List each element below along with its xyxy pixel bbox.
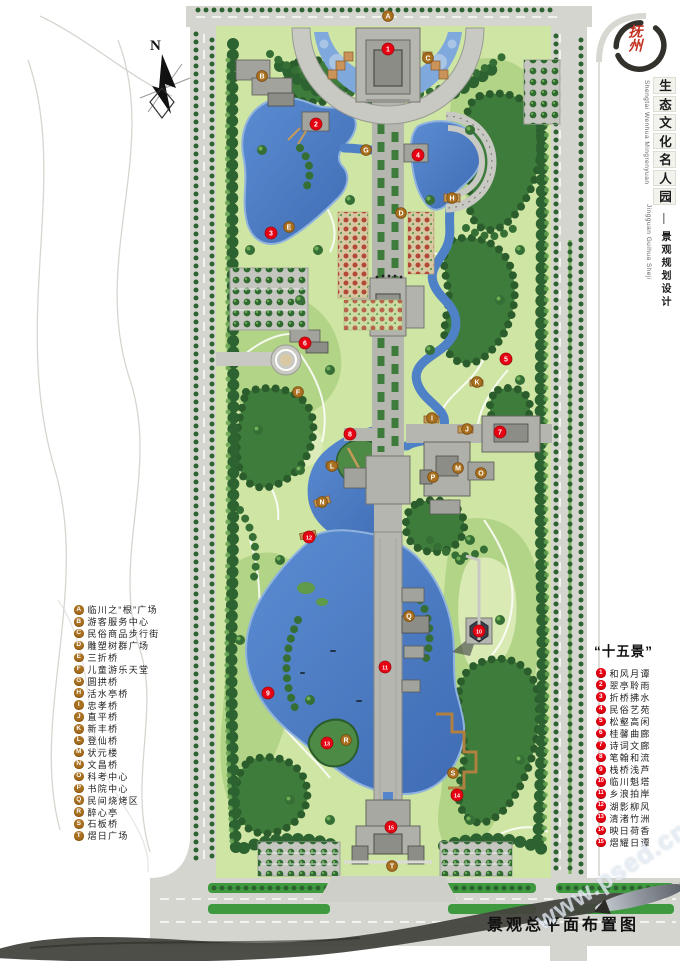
legend-item-E: E三折桥 <box>74 652 160 664</box>
legend-label-4: 民俗艺苑 <box>610 703 651 716</box>
legend-badge-D: D <box>74 641 84 651</box>
legend-item-L: L登仙桥 <box>74 735 160 747</box>
main-title-pinyin: Shengtai Wenhua Mingrenyuan <box>643 80 650 210</box>
map-marker-text-n13: 13 <box>324 741 330 747</box>
main-title-char: 名 <box>653 151 676 168</box>
map-marker-text-B: B <box>259 73 264 80</box>
legend-scenes: “十五景” 1和风月谭2翠亭聆雨3折桥拂水4民俗艺苑5松壑高闲6桂馨曲廊7诗词文… <box>596 640 653 848</box>
legend-item-4: 4民俗艺苑 <box>596 703 653 715</box>
map-marker-text-K: K <box>474 379 479 386</box>
map-marker-text-n12: 12 <box>306 535 312 541</box>
map-marker-text-n9: 9 <box>266 690 270 697</box>
legend-badge-13: 13 <box>596 813 606 823</box>
legend-item-H: H活水亭桥 <box>74 687 160 699</box>
legend-badge-B: B <box>74 617 84 627</box>
map-marker-text-S: S <box>451 770 456 777</box>
north-arrow-glyph <box>138 30 198 130</box>
legend-item-7: 7诗词文廊 <box>596 740 653 752</box>
legend-label-8: 笔翰和流 <box>610 751 651 764</box>
legend-label-2: 翠亭聆雨 <box>610 679 651 692</box>
parking-southeast <box>440 842 512 876</box>
legend-item-10: 10临川魁塔 <box>596 776 653 788</box>
legend-badge-5: 5 <box>596 717 606 727</box>
map-marker-text-M: M <box>455 465 461 472</box>
legend-item-B: B游客服务中心 <box>74 616 160 628</box>
legend-label-11: 乡浪拍岸 <box>610 787 651 800</box>
legend-badge-15: 15 <box>596 838 606 848</box>
map-marker-text-R: R <box>343 737 348 744</box>
map-marker-text-D: D <box>398 210 403 217</box>
legend-item-9: 9栈桥浅芦 <box>596 764 653 776</box>
legend-item-I: I忠孝桥 <box>74 699 160 711</box>
map-marker-text-O: O <box>478 470 484 477</box>
legend-label-T: 熠日广场 <box>88 829 129 842</box>
map-marker-text-N: N <box>319 499 324 506</box>
legend-item-R: R醉心亭 <box>74 806 160 818</box>
legend-item-12: 12湖影柳风 <box>596 800 653 812</box>
legend-item-Q: Q民间烧烤区 <box>74 794 160 806</box>
legend-item-J: J直平桥 <box>74 711 160 723</box>
map-marker-text-n14: 14 <box>454 793 460 799</box>
legend-badge-F: F <box>74 665 84 675</box>
map-marker-text-n4: 4 <box>416 152 420 159</box>
legend-item-5: 5松壑高闲 <box>596 715 653 727</box>
legend-label-9: 栈桥浅芦 <box>610 763 651 776</box>
map-marker-text-F: F <box>296 389 301 396</box>
legend-item-N: N文昌桥 <box>74 759 160 771</box>
map-marker-text-L: L <box>330 463 335 470</box>
legend-label-13: 清渚竹洲 <box>610 812 651 825</box>
legend-item-13: 13清渚竹洲 <box>596 812 653 824</box>
legend-badge-C: C <box>74 629 84 639</box>
map-marker-text-A: A <box>385 13 390 20</box>
legend-badge-G: G <box>74 677 84 687</box>
subtitle: 景观规划设计 <box>659 231 670 309</box>
map-marker-text-n5: 5 <box>504 356 508 363</box>
legend-badge-O: O <box>74 772 84 782</box>
map-marker-text-n8: 8 <box>348 431 352 438</box>
legend-item-K: K新丰桥 <box>74 723 160 735</box>
map-marker-text-H: H <box>449 195 454 202</box>
main-title-char: 文 <box>653 114 676 131</box>
main-title-char: 园 <box>653 188 676 205</box>
main-title-char: 人 <box>653 170 676 187</box>
legend-badge-S: S <box>74 819 84 829</box>
legend-badge-J: J <box>74 712 84 722</box>
legend-badge-8: 8 <box>596 753 606 763</box>
legend-badge-E: E <box>74 653 84 663</box>
legend-badge-K: K <box>74 724 84 734</box>
seal-logo: 抚州 <box>610 18 670 76</box>
legend-label-5: 松壑高闲 <box>610 715 651 728</box>
east-entrance <box>482 416 540 452</box>
main-title-char: 生 <box>653 77 676 94</box>
legend-badge-P: P <box>74 784 84 794</box>
legend-item-O: O科考中心 <box>74 770 160 782</box>
map-marker-text-P: P <box>431 474 436 481</box>
legend-badge-11: 11 <box>596 789 606 799</box>
legend-badge-14: 14 <box>596 826 606 836</box>
legend-badge-Q: Q <box>74 795 84 805</box>
legend-badge-1: 1 <box>596 668 606 678</box>
legend-badge-6: 6 <box>596 729 606 739</box>
legend-badge-T: T <box>74 831 84 841</box>
legend-label-1: 和风月谭 <box>610 667 651 680</box>
legend-badge-M: M <box>74 748 84 758</box>
legend-item-P: P书院中心 <box>74 782 160 794</box>
legend-facilities: A临川之“根”广场B游客服务中心C民俗商品步行街D雕塑树群广场E三折桥F儿童游乐… <box>74 604 160 842</box>
legend-badge-A: A <box>74 605 84 615</box>
north-arrow: N <box>138 30 198 130</box>
legend-item-1: 1和风月谭 <box>596 667 653 679</box>
legend-label-10: 临川魁塔 <box>610 775 651 788</box>
legend-scenes-header: “十五景” <box>594 640 653 660</box>
subtitle-pinyin: Jingguan Guihua Sheji <box>645 204 652 294</box>
main-title-char: 化 <box>653 133 676 150</box>
legend-item-S: S石板桥 <box>74 818 160 830</box>
legend-item-T: T熠日广场 <box>74 830 160 842</box>
legend-item-8: 8笔翰和流 <box>596 752 653 764</box>
legend-item-G: G圆拱桥 <box>74 675 160 687</box>
map-marker-text-G: G <box>363 147 369 154</box>
legend-item-D: D雕塑树群广场 <box>74 640 160 652</box>
map-marker-text-n7: 7 <box>498 429 502 436</box>
plan-sheet: ABCDEFGHIJKLMNOPQRST 1234567891011121314… <box>0 0 680 961</box>
map-marker-text-T: T <box>390 863 395 870</box>
legend-item-2: 2翠亭聆雨 <box>596 679 653 691</box>
map-marker-text-n6: 6 <box>303 340 307 347</box>
map-marker-text-n2: 2 <box>314 121 318 128</box>
map-marker-text-C: C <box>425 55 430 62</box>
legend-item-C: C民俗商品步行街 <box>74 628 160 640</box>
map-marker-text-E: E <box>287 224 292 231</box>
legend-badge-3: 3 <box>596 692 606 702</box>
parking-southwest <box>258 842 340 876</box>
legend-badge-I: I <box>74 700 84 710</box>
legend-label-7: 诗词文廊 <box>610 739 651 752</box>
legend-badge-4: 4 <box>596 705 606 715</box>
legend-badge-12: 12 <box>596 801 606 811</box>
map-marker-text-J: J <box>465 426 469 433</box>
legend-label-12: 湖影柳风 <box>610 800 651 813</box>
map-marker-text-n3: 3 <box>269 230 273 237</box>
legend-badge-9: 9 <box>596 765 606 775</box>
map-marker-text-I: I <box>431 415 433 422</box>
map-marker-text-n10: 10 <box>476 629 482 635</box>
title-block: 生态文化名人园 — 景观规划设计 <box>653 76 676 309</box>
legend-badge-7: 7 <box>596 741 606 751</box>
legend-badge-R: R <box>74 807 84 817</box>
legend-item-M: M状元楼 <box>74 747 160 759</box>
legend-label-3: 折桥拂水 <box>610 691 651 704</box>
main-title: 生态文化名人园 <box>656 76 673 206</box>
legend-badge-H: H <box>74 688 84 698</box>
legend-item-A: A临川之“根”广场 <box>74 604 160 616</box>
legend-item-11: 11乡浪拍岸 <box>596 788 653 800</box>
seal-text: 抚州 <box>626 24 641 52</box>
map-marker-text-n15: 15 <box>388 825 394 831</box>
legend-badge-N: N <box>74 760 84 770</box>
parking-northeast <box>524 60 560 124</box>
legend-badge-L: L <box>74 736 84 746</box>
legend-label-6: 桂馨曲廊 <box>610 727 651 740</box>
map-marker-text-n1: 1 <box>386 46 390 53</box>
legend-badge-2: 2 <box>596 680 606 690</box>
map-marker-text-n11: 11 <box>382 665 388 671</box>
legend-item-F: F儿童游乐天堂 <box>74 663 160 675</box>
legend-item-3: 3折桥拂水 <box>596 691 653 703</box>
main-title-char: 态 <box>653 96 676 113</box>
title-separator: — <box>658 213 670 224</box>
legend-badge-10: 10 <box>596 777 606 787</box>
map-marker-text-Q: Q <box>406 613 412 620</box>
legend-item-6: 6桂馨曲廊 <box>596 727 653 739</box>
